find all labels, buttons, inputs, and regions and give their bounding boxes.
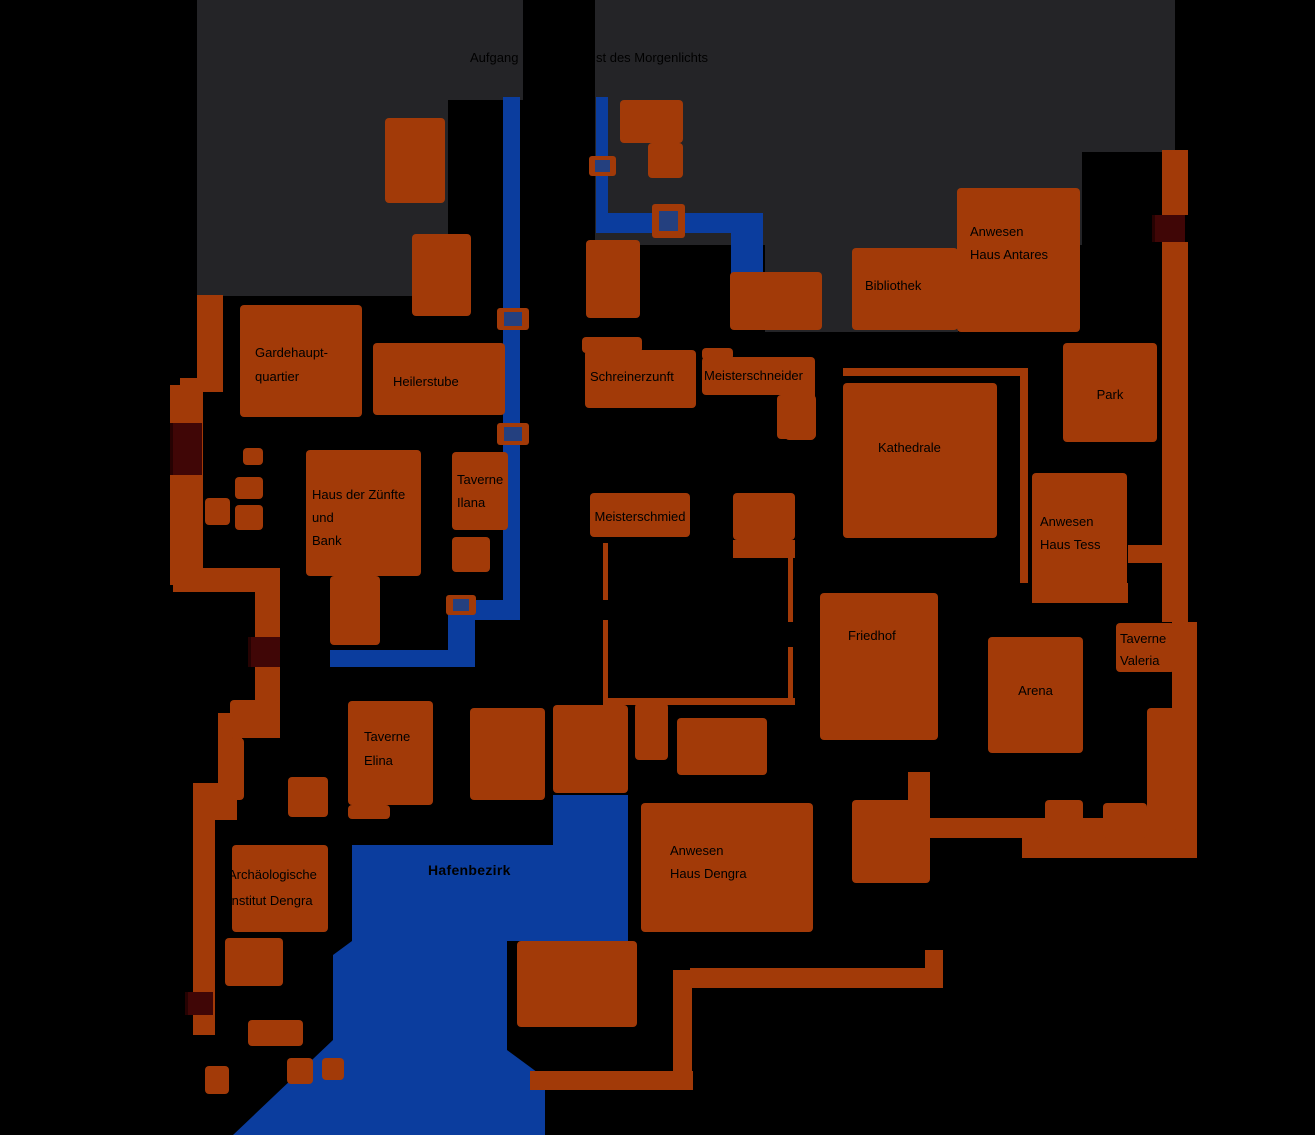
bridge-deck: [504, 427, 522, 440]
building: [235, 505, 263, 530]
building: [677, 718, 767, 775]
river-segment: [448, 617, 475, 650]
arena-building: Arena: [988, 637, 1083, 753]
building: [733, 493, 795, 540]
building: [852, 800, 930, 883]
building: [288, 777, 328, 817]
haus-der-zuenfte-und-bank-building: Haus der ZünfteundBank: [306, 450, 421, 576]
gardehauptquartier-building: Gardehaupt-quartier: [240, 305, 362, 417]
road-segment: [197, 295, 223, 385]
friedhof-building: Friedhof: [820, 593, 938, 740]
building: [517, 941, 637, 1027]
taverne-valeria-label: TaverneValeria: [1120, 628, 1166, 672]
building: [235, 477, 263, 499]
building: [1045, 800, 1083, 838]
taverne-elina-building: TaverneElina: [348, 701, 433, 805]
haus-der-zuenfte-annex-building: [330, 576, 380, 645]
anwesen-haus-tess-building: AnwesenHaus Tess: [1032, 473, 1127, 603]
road-segment: [1162, 242, 1188, 622]
bibliothek-label: Bibliothek: [865, 274, 921, 297]
kathedrale-label: Kathedrale: [878, 436, 941, 459]
heilerstube-building: Heilerstube: [373, 343, 505, 415]
taverne-elina-label: TaverneElina: [364, 725, 410, 773]
anwesen-haus-dengra-building: AnwesenHaus Dengra: [641, 803, 813, 932]
building: [586, 240, 640, 318]
building: [1103, 803, 1147, 838]
river-segment: [731, 213, 763, 275]
building: [385, 118, 445, 203]
taverne-valeria-building: TaverneValeria: [1116, 623, 1175, 672]
building: [230, 700, 278, 738]
map-mask-overlay: [523, 0, 595, 96]
bridge: [446, 595, 476, 615]
bridge: [652, 204, 685, 238]
bridge-deck: [595, 160, 610, 172]
anwesen-haus-antares-label: AnwesenHaus Antares: [970, 220, 1048, 266]
taverne-ilana-annex-building: [452, 537, 490, 572]
road-segment: [1022, 838, 1197, 858]
bibliothek-building: Bibliothek: [852, 248, 958, 330]
meisterschmied-label: Meisterschmied: [590, 505, 690, 528]
building: [243, 448, 263, 465]
building: [648, 143, 683, 178]
road-segment: [170, 385, 203, 585]
bridge-deck: [504, 312, 522, 325]
wall-segment: [603, 620, 608, 700]
friedhof-label: Friedhof: [848, 624, 896, 647]
building: [205, 498, 230, 525]
schreinerzunft-label: Schreinerzunft: [590, 365, 674, 388]
gate: [185, 992, 213, 1015]
wall-segment: [603, 543, 608, 600]
river-segment: [503, 97, 520, 610]
building: [553, 705, 628, 793]
gate: [248, 637, 280, 667]
building: [470, 708, 545, 800]
meisterschmied-building: Meisterschmied: [590, 493, 690, 537]
hafenbezirk-label: Hafenbezirk: [428, 862, 511, 878]
building: [1147, 708, 1178, 830]
building: [230, 738, 244, 800]
gardehauptquartier-label: Gardehaupt-quartier: [255, 341, 328, 389]
building: [785, 388, 815, 440]
river-segment: [330, 650, 475, 667]
wall-segment: [788, 557, 793, 622]
building: [412, 234, 471, 316]
park-label: Park: [1063, 383, 1157, 406]
taverne-ilana-label: TaverneIlana: [457, 468, 503, 514]
heilerstube-label: Heilerstube: [393, 370, 459, 393]
wall-segment: [733, 540, 795, 558]
building: [225, 938, 283, 986]
building: [287, 1058, 313, 1084]
gate: [1152, 215, 1185, 242]
arena-label: Arena: [988, 679, 1083, 702]
aufgang-label-left: Aufgang: [470, 50, 518, 65]
building: [248, 1020, 303, 1046]
road-segment: [530, 1071, 693, 1090]
taverne-ilana-building: TaverneIlana: [452, 452, 508, 530]
bridge-deck: [453, 599, 470, 611]
gate: [170, 423, 202, 475]
anwesen-haus-antares-building: AnwesenHaus Antares: [957, 188, 1080, 332]
bridge: [589, 156, 616, 176]
wall-segment: [603, 698, 795, 705]
archaeologisches-institut-dengra-label: ArchäologischeInstitut Dengra: [232, 862, 317, 914]
building: [730, 272, 822, 330]
wall-segment: [788, 647, 793, 698]
taverne-elina-annex-building: [348, 805, 390, 819]
building: [635, 703, 668, 760]
building: [205, 1066, 229, 1094]
park-building: Park: [1063, 343, 1157, 442]
aufgang-label-right: st des Morgenlichts: [596, 50, 708, 65]
road-segment: [1162, 150, 1188, 215]
wall-segment: [843, 368, 1028, 376]
road-segment: [925, 950, 943, 988]
anwesen-haus-dengra-label: AnwesenHaus Dengra: [670, 839, 747, 885]
road-segment: [673, 970, 692, 1090]
bridge: [497, 423, 529, 445]
haus-der-zuenfte-und-bank-label: Haus der ZünfteundBank: [312, 483, 405, 552]
bridge: [497, 308, 529, 330]
anwesen-haus-tess-label: AnwesenHaus Tess: [1040, 510, 1100, 556]
schreinerzunft-building: Schreinerzunft: [585, 350, 696, 408]
bridge-deck: [659, 211, 677, 231]
kathedrale-building: Kathedrale: [843, 383, 997, 538]
schreinerzunft-annex-building: [582, 337, 642, 353]
meisterschneider-annex-building: [702, 348, 733, 360]
city-district-map: Gardehaupt-quartierHeilerstubeSchreinerz…: [0, 0, 1315, 1135]
building: [322, 1058, 344, 1080]
meisterschneider-label: Meisterschneider: [704, 364, 803, 387]
road-segment: [1128, 545, 1172, 563]
wall-segment: [1020, 368, 1028, 583]
building: [620, 100, 683, 143]
road-segment: [690, 968, 943, 988]
archaeologisches-institut-dengra-building: ArchäologischeInstitut Dengra: [232, 845, 328, 932]
